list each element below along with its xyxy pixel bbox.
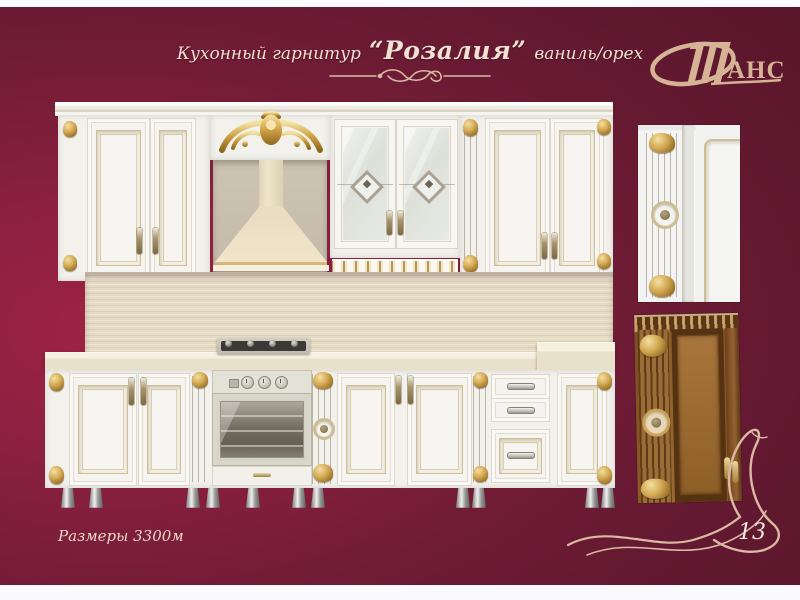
cabinet-door — [550, 118, 604, 278]
gold-ornament-icon — [597, 119, 611, 135]
cabinet-door — [407, 373, 472, 486]
pilaster — [192, 376, 209, 482]
door-handle — [153, 228, 158, 254]
logo-sh-bars-icon — [682, 42, 731, 83]
hood-duct — [259, 160, 283, 208]
oven-knob — [241, 376, 254, 389]
gold-ornament-icon — [313, 372, 333, 389]
worktop — [45, 352, 537, 372]
cabinet-door — [150, 118, 196, 278]
hob-burner-icon — [291, 340, 298, 347]
gold-ornament-icon — [63, 121, 77, 137]
gold-ornament-icon — [649, 133, 675, 153]
top-edge-strip — [0, 0, 800, 7]
gold-ornament-icon — [49, 373, 64, 391]
door-handle — [387, 211, 392, 235]
cabinet-door — [87, 118, 150, 278]
cabinet-door — [696, 125, 740, 302]
cornice — [55, 102, 613, 116]
oven-door — [212, 393, 312, 466]
base-cabinets — [45, 370, 615, 488]
cabinet-leg — [456, 488, 470, 510]
door-handle — [398, 211, 403, 235]
page-title: Кухонный гарнитур “Розалия” ваниль/орех — [105, 36, 715, 65]
cabinet-door — [69, 373, 137, 486]
gold-ornament-icon — [192, 372, 208, 388]
brand-logo: АНС Ш — [645, 33, 785, 91]
oven-knob — [275, 376, 288, 389]
gold-ornament-icon — [649, 275, 675, 297]
gold-ornament-icon — [49, 466, 64, 484]
door-handle — [408, 376, 413, 404]
gold-ornament-icon — [463, 255, 478, 272]
title-suffix: ваниль/орех — [534, 44, 643, 64]
hob-burner-icon — [247, 340, 254, 347]
crown-ornament-icon — [217, 108, 325, 160]
drawer — [491, 374, 550, 399]
dimensions-label: Размеры 3300м — [58, 527, 184, 545]
kitchen-photo — [45, 96, 615, 516]
upper-cabinet-right — [460, 115, 613, 281]
backsplash — [85, 272, 613, 354]
page-number: 13 — [738, 520, 766, 545]
cabinet-door — [337, 373, 395, 486]
cabinet-leg — [186, 488, 200, 510]
oven-control-panel — [212, 370, 312, 395]
door-handle — [141, 378, 146, 405]
cabinet-leg — [89, 488, 103, 510]
stile — [682, 125, 694, 302]
door-handle — [552, 233, 557, 259]
gold-ornament-icon — [597, 253, 611, 269]
worktop-raised — [537, 342, 615, 372]
cabinet-leg — [311, 488, 325, 510]
door-handle — [137, 228, 142, 254]
gold-ornament-icon — [639, 334, 665, 357]
upper-cabinet-left — [58, 115, 210, 281]
oven-drawer — [212, 466, 312, 486]
upper-cabinet-glass — [330, 115, 460, 258]
drawer — [491, 398, 550, 422]
cabinet-leg — [246, 488, 260, 510]
door-handle — [129, 378, 134, 405]
cabinet-leg — [292, 488, 306, 510]
drawer-handle — [253, 473, 271, 477]
gas-hob — [217, 338, 310, 354]
bottom-edge-strip — [0, 585, 800, 600]
cabinet-door — [485, 118, 550, 278]
medallion-icon — [313, 418, 335, 440]
title-prefix: Кухонный гарнитур — [177, 44, 361, 64]
hob-burner-icon — [269, 340, 276, 347]
oven-display — [229, 379, 239, 388]
oven-glass — [220, 401, 304, 458]
cabinet-leg — [61, 488, 75, 510]
drawer — [491, 429, 550, 483]
medallion-icon — [651, 201, 679, 229]
gold-ornament-icon — [473, 372, 488, 388]
product-name: “Розалия” — [366, 36, 529, 65]
gold-ornament-icon — [63, 255, 77, 271]
door-handle — [396, 376, 401, 404]
drawer-handle — [507, 407, 535, 414]
cabinet-leg — [206, 488, 220, 510]
corner-flourish-icon — [565, 423, 800, 578]
hob-burner-icon — [225, 340, 232, 347]
title-flourish-icon — [328, 64, 492, 88]
catalog-page: Кухонный гарнитур “Розалия” ваниль/орех … — [0, 0, 800, 600]
door-panel — [704, 139, 740, 302]
hood-base — [213, 265, 329, 271]
gold-ornament-icon — [313, 464, 333, 482]
cabinet-leg — [472, 488, 486, 510]
gold-ornament-icon — [463, 119, 478, 136]
gold-ornament-icon — [473, 466, 488, 482]
door-handle — [542, 233, 547, 259]
detail-photo-white — [638, 125, 740, 302]
drawer-handle — [507, 452, 535, 459]
glass-door — [396, 119, 458, 249]
oven-knob — [258, 376, 271, 389]
gold-ornament-icon — [597, 372, 612, 390]
drawer-handle — [507, 383, 535, 390]
pilaster — [464, 127, 480, 267]
